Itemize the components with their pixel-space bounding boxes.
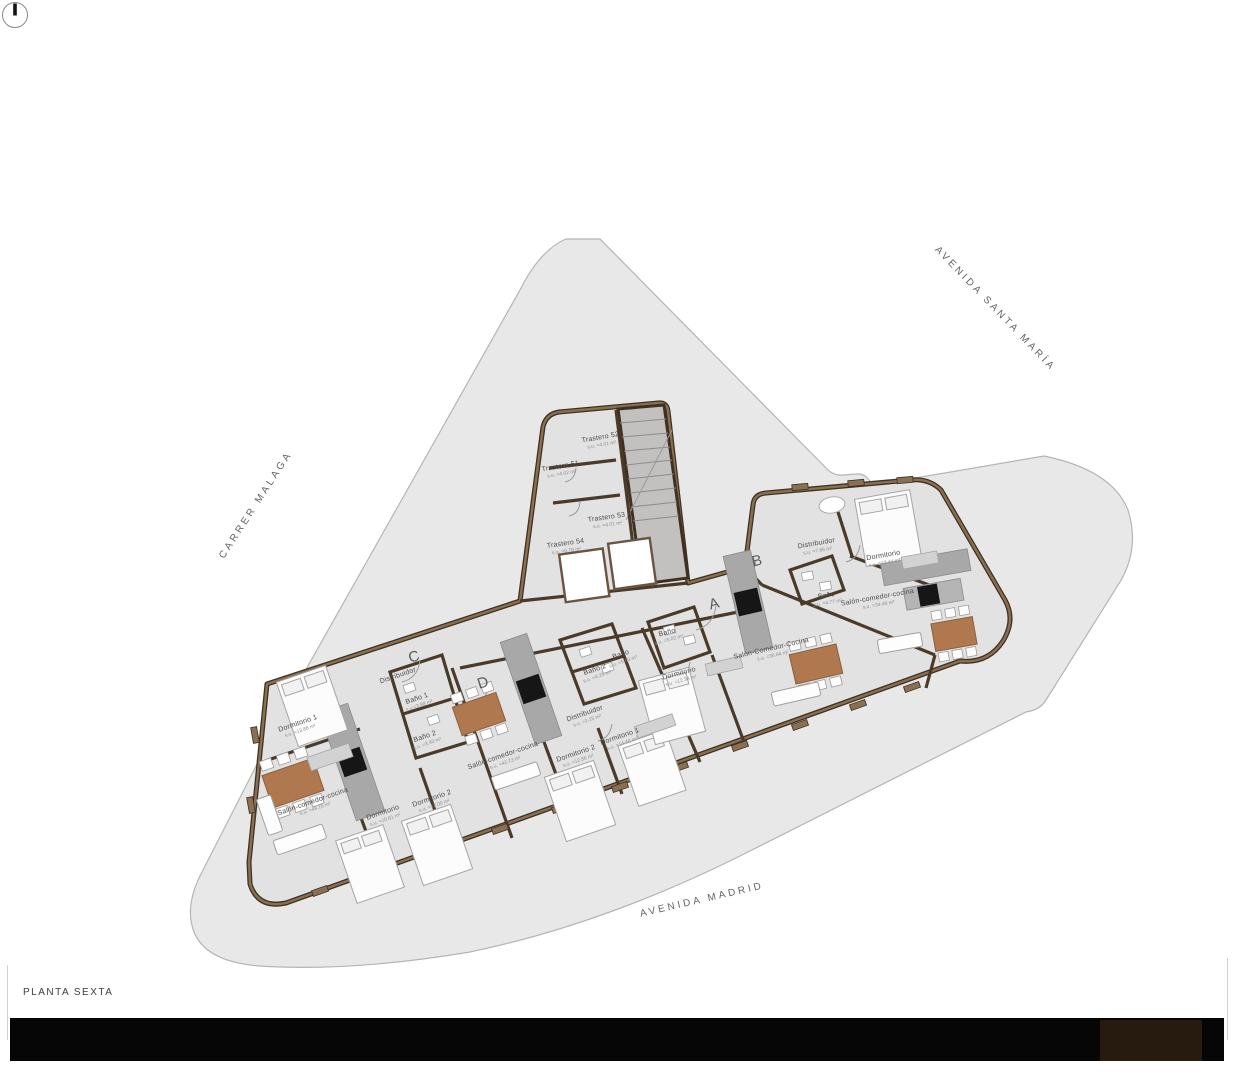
floor-plan-drawing (0, 0, 1236, 1080)
title-bar (10, 1018, 1224, 1061)
frame-line-right (1227, 958, 1228, 1040)
bed (855, 490, 922, 567)
floor-plan-sheet: Trastero 52s.u. =4.01 m²Trastero 51s.u. … (0, 0, 1236, 1080)
north-arrow-icon (0, 0, 30, 30)
frame-line-left (7, 965, 8, 1040)
sheet-title: PLANTA SEXTA (23, 987, 113, 998)
title-bar-brown-block (1100, 1020, 1202, 1061)
